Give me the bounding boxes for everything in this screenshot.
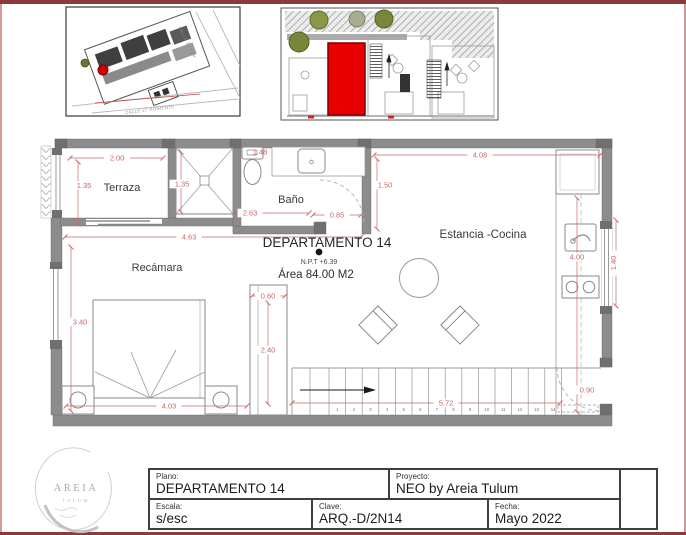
title-block: Plano: DEPARTAMENTO 14 Proyecto: NEO by …: [148, 468, 658, 530]
proyecto-value: NEO by Areia Tulum: [396, 481, 619, 496]
stair-number: 7: [436, 407, 439, 412]
dim-terraza-height: 1.35: [72, 162, 97, 224]
dim-closet-width: 0.60: [252, 292, 285, 301]
room-label-terraza: Terraza: [104, 182, 142, 194]
svg-text:2.63: 2.63: [243, 209, 258, 218]
titleblock-fecha-cell: Fecha: Mayo 2022: [488, 499, 620, 529]
bed: [93, 300, 205, 398]
titleblock-proyecto-cell: Proyecto: NEO by Areia Tulum: [389, 469, 620, 499]
logo-sub-text: TULUM: [62, 498, 89, 503]
stair-number: 5: [403, 407, 406, 412]
nightstand: [62, 386, 94, 414]
svg-text:1.35: 1.35: [77, 181, 92, 190]
dim-terraza-width: 2.00: [70, 154, 163, 163]
svg-text:1.48: 1.48: [253, 148, 268, 157]
dim-living-left: 1.50: [373, 159, 397, 229]
svg-text:4.03: 4.03: [162, 402, 177, 411]
dim-entry-door: 0.90: [575, 386, 600, 395]
svg-text:2.00: 2.00: [110, 154, 125, 163]
stair-number: 9: [469, 407, 472, 412]
room-label-bano: Baño: [278, 194, 304, 206]
brand-logo: AREIA TULUM: [35, 448, 111, 532]
stair-direction-arrow: [300, 387, 376, 394]
refrigerator: [556, 150, 599, 194]
clave-value: ARQ.-D/2N14: [319, 511, 487, 526]
svg-text:4.63: 4.63: [182, 233, 197, 242]
escala-value: s/esc: [156, 511, 311, 526]
room-label-estancia: Estancia -Cocina: [440, 229, 528, 241]
svg-text:5.72: 5.72: [439, 399, 454, 408]
stair-number: 8: [452, 407, 455, 412]
svg-text:3.40: 3.40: [73, 318, 88, 327]
escala-label: Escala:: [156, 502, 311, 511]
you-are-here-dot: [98, 65, 108, 75]
svg-text:1.35: 1.35: [175, 180, 190, 189]
chair: [441, 306, 479, 344]
fecha-value: Mayo 2022: [495, 511, 619, 526]
stair-hatch: [370, 44, 382, 78]
dim-bath-top: 1.48: [253, 148, 268, 157]
svg-text:4.00: 4.00: [570, 253, 585, 262]
stair-hatch: [427, 60, 441, 98]
planter-hatch: [41, 146, 51, 218]
svg-text:2.40: 2.40: [261, 346, 276, 355]
red-tick: [388, 116, 394, 119]
location-map: CALLE 20 SUR CALLE 27 PONIENTE: [66, 7, 240, 121]
dim-bath-door: 0.85: [313, 211, 361, 220]
bathroom-sink: [272, 147, 365, 176]
stair-number: 12: [518, 407, 523, 412]
apartment-title: DEPARTAMENTO 14: [263, 235, 392, 250]
stair-number: 3: [369, 407, 372, 412]
core-block: [400, 74, 410, 92]
svg-text:1.40: 1.40: [609, 256, 618, 271]
tree-icon: [81, 59, 89, 67]
plano-value: DEPARTAMENTO 14: [156, 481, 388, 496]
npt-level: N.P.T +6.39: [301, 259, 338, 266]
nightstand: [205, 386, 237, 414]
floor-plan: 1 2 3 4 5 6 7 8 9 10 11 12 13 14: [41, 139, 618, 426]
svg-text:0.85: 0.85: [330, 211, 345, 220]
site-plan: [281, 8, 498, 120]
titleblock-empty-cell: [620, 469, 657, 529]
stair-number: 2: [353, 407, 356, 412]
kitchen: [556, 150, 599, 415]
logo-brand-text: AREIA: [54, 483, 99, 494]
stair-number: 6: [419, 407, 422, 412]
proyecto-label: Proyecto:: [396, 472, 619, 481]
stair-number: 14: [551, 407, 556, 412]
stair-numbers: 1 2 3 4 5 6 7 8 9 10 11 12 13 14: [336, 407, 556, 412]
stair-number: 4: [386, 407, 389, 412]
titleblock-escala-cell: Escala: s/esc: [149, 499, 312, 529]
sliding-door: [86, 219, 162, 225]
stair-number: 1: [336, 407, 339, 412]
svg-text:4.08: 4.08: [473, 151, 488, 160]
dim-bath-left: 2.63: [235, 209, 309, 218]
drawing-canvas: CALLE 20 SUR CALLE 27 PONIENTE: [0, 0, 686, 535]
red-tick: [308, 116, 314, 119]
stair-number: 10: [484, 407, 489, 412]
room-label-recamara: Recámara: [132, 262, 184, 274]
sheet: CALLE 20 SUR CALLE 27 PONIENTE: [0, 0, 686, 535]
highlighted-unit: [328, 43, 365, 115]
fecha-label: Fecha:: [495, 502, 619, 511]
plano-label: Plano:: [156, 472, 388, 481]
round-table: [400, 259, 439, 298]
svg-text:0.60: 0.60: [261, 292, 276, 301]
titleblock-plano-cell: Plano: DEPARTAMENTO 14: [149, 469, 389, 499]
stair-number: 13: [534, 407, 539, 412]
clave-label: Clave:: [319, 502, 487, 511]
stair-number: 11: [501, 407, 506, 412]
apartment-area: Área 84.00 M2: [278, 268, 353, 281]
titleblock-clave-cell: Clave: ARQ.-D/2N14: [312, 499, 488, 529]
kitchen-sink: [565, 224, 596, 251]
svg-text:0.90: 0.90: [580, 386, 595, 395]
svg-text:1.50: 1.50: [378, 181, 393, 190]
chair: [359, 306, 397, 344]
stove: [562, 276, 599, 298]
